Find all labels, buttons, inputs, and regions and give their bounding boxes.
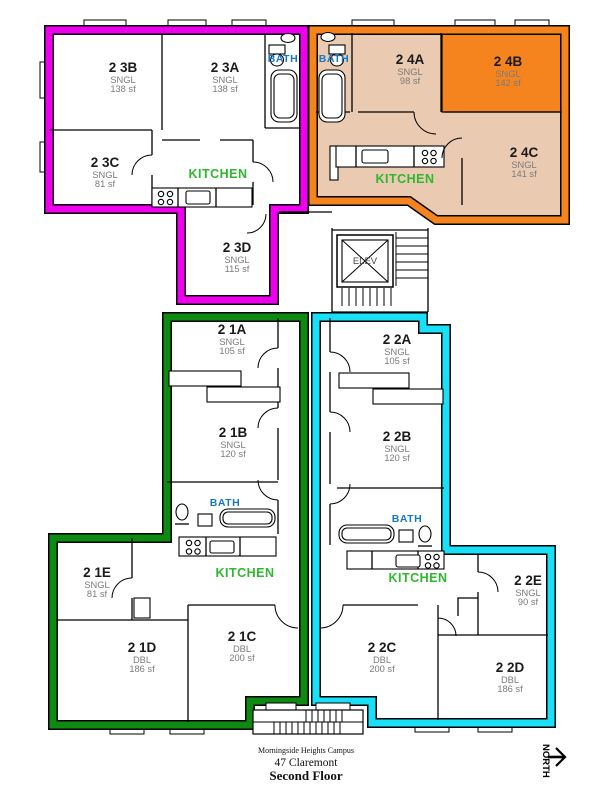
room-area-2-1E: 81 sf [87, 589, 108, 599]
room-label-2-2A: 2 2A [383, 332, 412, 347]
room-area-2-1D: 186 sf [129, 664, 155, 674]
north-indicator: NORTH [540, 744, 565, 778]
kitchen-label-suite-2-4: KITCHEN [375, 172, 434, 186]
room-label-2-2E: 2 2E [514, 573, 542, 588]
room-area-2-2B: 120 sf [384, 453, 410, 463]
kitchen-label-suite-2-2: KITCHEN [388, 571, 447, 585]
room-label-2-3A: 2 3A [211, 60, 240, 75]
room-area-2-4B: 142 sf [495, 78, 521, 88]
room-area-2-1C: 200 sf [229, 653, 255, 663]
room-label-2-3C: 2 3C [91, 155, 120, 170]
room-label-2-3D: 2 3D [223, 240, 252, 255]
floor-plan-canvas: ELEV [0, 0, 612, 792]
room-area-2-2D: 186 sf [497, 684, 523, 694]
kitchen-fixtures-suite-2-3 [152, 188, 252, 207]
room-label-2-1E: 2 1E [83, 565, 111, 580]
room-label-2-4B: 2 4B [494, 54, 523, 69]
bath-label-suite-2-2: BATH [392, 513, 422, 525]
room-area-2-4C: 141 sf [511, 169, 537, 179]
room-label-2-4C: 2 4C [510, 145, 539, 160]
room-label-2-2D: 2 2D [496, 660, 525, 675]
bath-label-suite-2-1: BATH [210, 497, 240, 509]
kitchen-label-suite-2-3: KITCHEN [188, 167, 247, 181]
elevator: ELEV [337, 235, 393, 287]
room-area-2-3D: 115 sf [225, 264, 250, 274]
room-area-2-4A: 98 sf [400, 76, 421, 86]
room-label-2-1C: 2 1C [228, 629, 257, 644]
north-label: NORTH [540, 744, 551, 778]
elevator-label: ELEV [353, 256, 378, 267]
room-area-2-3B: 138 sf [110, 84, 136, 94]
bath-label-suite-2-3: BATH [268, 53, 298, 65]
campus-title: Morningside Heights Campus [258, 746, 354, 755]
room-label-2-2B: 2 2B [383, 429, 412, 444]
room-area-2-1A: 105 sf [219, 346, 245, 356]
room-label-2-1B: 2 1B [219, 425, 248, 440]
bath-label-suite-2-4: BATH [319, 53, 349, 65]
entry-stairs [253, 703, 363, 734]
room-area-2-2E: 90 sf [518, 597, 539, 607]
room-label-2-4A: 2 4A [396, 52, 425, 67]
room-area-2-2C: 200 sf [369, 664, 395, 674]
room-area-2-1B: 120 sf [220, 449, 246, 459]
bath-fixtures-suite-2-3 [269, 34, 297, 123]
room-area-2-3A: 138 sf [212, 84, 238, 94]
room-label-2-2C: 2 2C [368, 640, 397, 655]
room-label-2-1A: 2 1A [218, 322, 247, 337]
suite-2-3-outline [49, 30, 304, 300]
title-block: Morningside Heights Campus 47 Claremont … [258, 746, 354, 783]
room-area-2-3C: 81 sf [95, 179, 116, 189]
kitchen-label-suite-2-1: KITCHEN [215, 566, 274, 580]
room-label-2-1D: 2 1D [128, 640, 157, 655]
floor-title: Second Floor [269, 768, 343, 783]
room-label-2-3B: 2 3B [109, 60, 138, 75]
floor-plan-page: ELEV [0, 0, 612, 792]
kitchen-fixtures-suite-2-2 [347, 551, 444, 569]
room-area-2-2A: 105 sf [384, 356, 410, 366]
kitchen-fixtures-suite-2-1 [179, 537, 276, 556]
bath-fixtures-suite-2-2 [339, 525, 432, 546]
